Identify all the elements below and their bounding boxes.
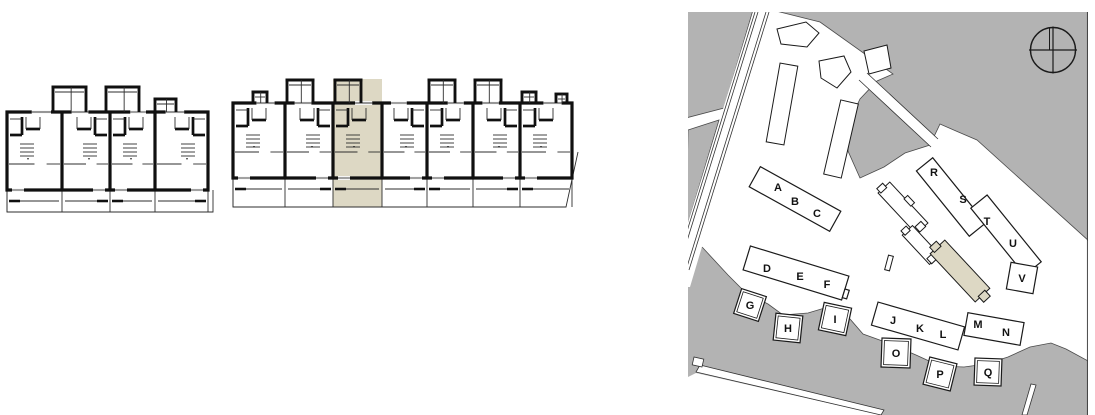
building-label-B: B xyxy=(791,196,799,208)
building-label-O: O xyxy=(892,348,901,360)
building-label-M: M xyxy=(973,319,982,331)
building-label-D: D xyxy=(763,263,771,275)
floor-plan-right xyxy=(232,79,579,207)
floor-plan-left xyxy=(6,87,214,212)
site-plan-map: ABCDEFGHIJKLMNOPQRSTUV xyxy=(688,12,1088,415)
building-label-J: J xyxy=(890,315,896,327)
building-label-G: G xyxy=(746,300,755,312)
building-label-P: P xyxy=(936,369,943,381)
building-label-H: H xyxy=(784,323,792,335)
building-label-V: V xyxy=(1018,273,1026,285)
architectural-sheet: { "colors": { "highlight": "#ddd8c4", "m… xyxy=(0,0,1095,415)
building-label-N: N xyxy=(1002,327,1010,339)
building-label-R: R xyxy=(930,167,938,179)
building-label-U: U xyxy=(1009,238,1017,250)
building-label-C: C xyxy=(813,208,821,220)
building-label-E: E xyxy=(796,271,803,283)
building-label-I: I xyxy=(833,314,836,326)
building-label-L: L xyxy=(940,329,947,341)
building-label-F: F xyxy=(824,279,831,291)
building-label-S: S xyxy=(959,194,966,206)
floor-plans xyxy=(0,0,640,415)
building-label-K: K xyxy=(916,323,924,335)
building-label-Q: Q xyxy=(984,367,993,379)
building-label-A: A xyxy=(774,182,782,194)
building-label-T: T xyxy=(984,216,991,228)
